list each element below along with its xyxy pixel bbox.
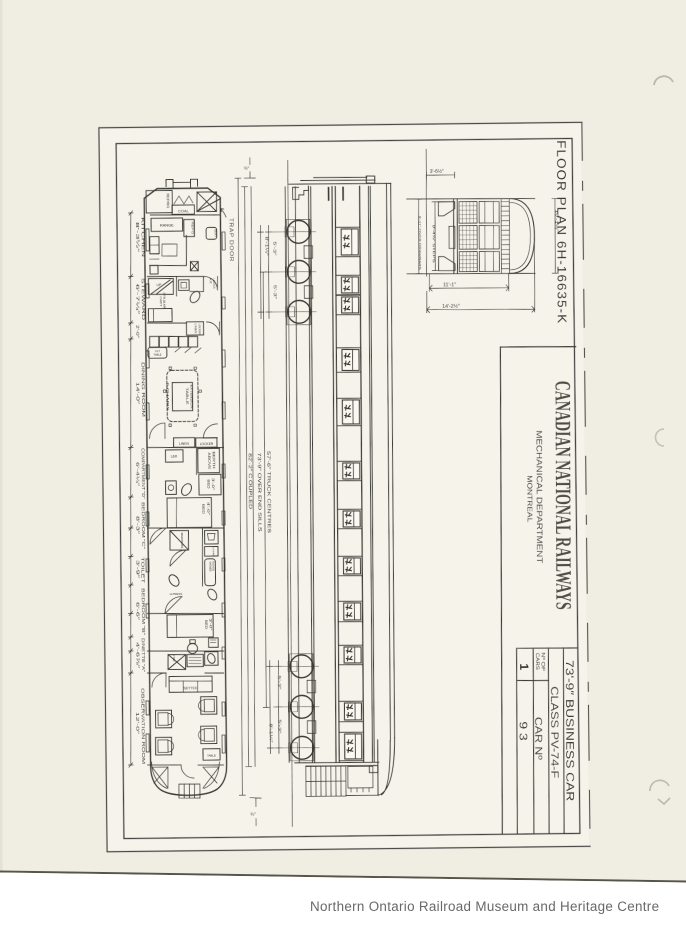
svg-text:HTR: HTR <box>172 655 175 661</box>
svg-text:BED: BED <box>204 620 208 630</box>
svg-text:6'-7¼″: 6'-7¼″ <box>135 284 140 315</box>
svg-text:BED: BED <box>206 479 210 489</box>
svg-text:UP: UP <box>156 283 162 287</box>
svg-text:8'-3½″: 8'-3½″ <box>135 222 140 253</box>
svg-text:9·CHAIRS: 9·CHAIRS <box>165 383 170 412</box>
svg-text:LOCKER: LOCKER <box>212 548 214 556</box>
svg-text:3'-9″: 3'-9″ <box>135 560 140 579</box>
svg-text:3'-0″: 3'-0″ <box>211 478 215 492</box>
svg-text:8'-1¼″: 8'-1¼″ <box>269 724 274 744</box>
svg-text:LINEN: LINEN <box>179 442 189 446</box>
svg-text:4'-6⅞″: 4'-6⅞″ <box>135 642 140 669</box>
svg-text:SEAT: SEAT <box>213 229 217 238</box>
svg-text:3'-6½″: 3'-6½″ <box>430 168 444 175</box>
svg-text:6'-6″: 6'-6″ <box>135 602 140 621</box>
svg-text:¾″: ¾″ <box>244 166 250 171</box>
svg-text:8'-1¼″: 8'-1¼″ <box>264 237 269 257</box>
svg-text:H.PRESS: H.PRESS <box>170 592 182 596</box>
svg-text:73'-9″ BUSINESS CAR: 73'-9″ BUSINESS CAR <box>563 660 576 801</box>
svg-text:CLASS PV-74-F: CLASS PV-74-F <box>548 686 560 778</box>
svg-text:57'-6″ TRUCK CENTRES: 57'-6″ TRUCK CENTRES <box>266 451 272 533</box>
svg-text:KIT.: KIT. <box>209 278 213 284</box>
svg-text:3'-0″: 3'-0″ <box>208 618 212 632</box>
svg-text:14'-0″: 14'-0″ <box>135 382 140 405</box>
svg-text:6'-4¼″: 6'-4¼″ <box>135 462 140 487</box>
svg-text:73'-9″ OVER END SILLS: 73'-9″ OVER END SILLS <box>257 453 263 532</box>
svg-text:9'-4⅝″ STEPS: 9'-4⅝″ STEPS <box>432 225 436 263</box>
svg-text:Northern Ontario Railroad Muse: Northern Ontario Railroad Museum and Her… <box>310 899 659 914</box>
svg-text:82'-2″ C OUPLED: 82'-2″ C OUPLED <box>248 453 253 510</box>
svg-text:REF'G: REF'G <box>190 221 194 235</box>
svg-text:5'-3″: 5'-3″ <box>277 719 282 734</box>
svg-text:WARDROBE: WARDROBE <box>180 532 184 548</box>
svg-text:CAB'T: CAB'T <box>159 296 163 307</box>
svg-text:RANGE: RANGE <box>160 222 174 227</box>
svg-text:12'-0″: 12'-0″ <box>135 712 140 735</box>
svg-text:2'-0″: 2'-0″ <box>135 325 140 339</box>
svg-text:TABLE: TABLE <box>207 754 216 758</box>
svg-text:4'-0″: 4'-0″ <box>206 502 210 517</box>
svg-text:CAR Nº: CAR Nº <box>532 717 543 760</box>
svg-text:EXTENSION: EXTENSION <box>190 384 194 409</box>
svg-text:11'-1″: 11'-1″ <box>443 282 456 288</box>
svg-text:SHOWER: SHOWER <box>208 561 211 571</box>
svg-text:5'-3″: 5'-3″ <box>273 285 278 300</box>
svg-text:LOCKER: LOCKER <box>200 442 214 446</box>
svg-text:L&R: L&R <box>171 454 178 458</box>
svg-text:BED: BED <box>201 504 205 515</box>
svg-text:TABLE: TABLE <box>185 387 189 405</box>
svg-text:LOCKER: LOCKER <box>198 323 202 334</box>
svg-text:1: 1 <box>517 663 531 670</box>
svg-text:8'-3″: 8'-3″ <box>135 516 140 535</box>
svg-text:ABOVE: ABOVE <box>207 452 211 469</box>
svg-text:5'-3″: 5'-3″ <box>277 675 282 690</box>
svg-text:5'-3″: 5'-3″ <box>272 241 277 256</box>
svg-text:93: 93 <box>517 721 529 744</box>
svg-text:FLOOR PLAN 6H-16635-K: FLOOR PLAN 6H-16635-K <box>554 140 569 324</box>
svg-text:TRAP DOOR: TRAP DOOR <box>228 218 234 262</box>
svg-text:14'-2½″: 14'-2½″ <box>442 303 460 310</box>
svg-text:LINEN: LINEN <box>194 323 198 333</box>
svg-text:MECHANICAL DEPARTMENT: MECHANICAL DEPARTMENT <box>535 430 545 563</box>
svg-text:REFRIG: REFRIG <box>165 193 169 208</box>
svg-text:LOCKER: LOCKER <box>212 278 216 288</box>
svg-text:MONTREAL: MONTREAL <box>525 475 532 522</box>
svg-text:CARS: CARS <box>534 653 540 671</box>
svg-text:CANADIAN NATIONAL RAILWAYS: CANADIAN NATIONAL RAILWAYS <box>551 381 577 610</box>
svg-text:10'-1½″: 10'-1½″ <box>555 210 560 233</box>
svg-text:TABLE: TABLE <box>153 353 161 357</box>
svg-text:COAL: COAL <box>178 208 190 213</box>
svg-text:¾″: ¾″ <box>250 812 256 817</box>
svg-text:9'-11″ OVER DRAWBARS: 9'-11″ OVER DRAWBARS <box>418 216 422 270</box>
svg-text:SETTEE: SETTEE <box>183 686 198 690</box>
